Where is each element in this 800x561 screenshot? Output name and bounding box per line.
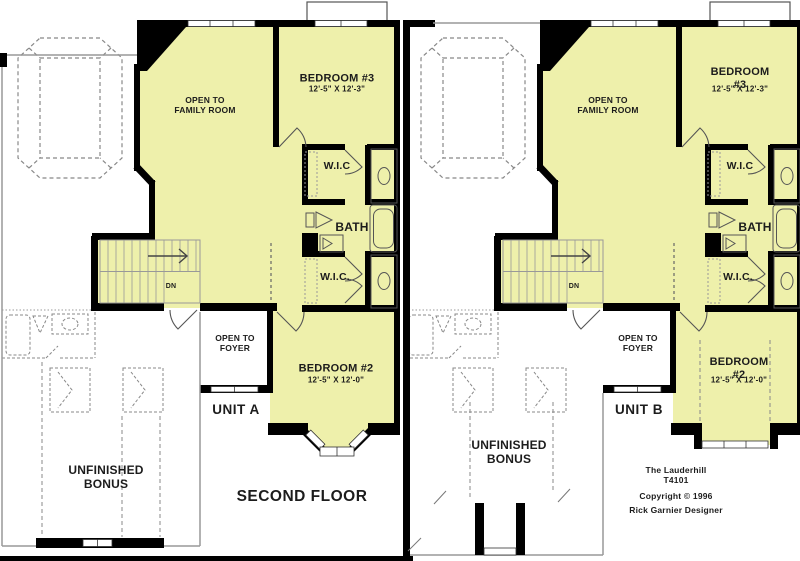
label-open-to-family-room: OPEN TO FAMILY ROOM: [577, 95, 638, 115]
unit-b-bonus-dormer: [475, 503, 525, 555]
label-unfinished-bonus: UNFINISHED BONUS: [471, 438, 546, 466]
label-wic-upper: W.I.C: [727, 160, 754, 172]
label-stairs-dn: DN: [569, 283, 580, 291]
title-plan-name: The Lauderhill: [646, 465, 707, 475]
label-bedroom2-dims: 12'-5" X 12'-0": [308, 375, 364, 384]
label-stairs-dn: DN: [166, 283, 177, 291]
label-open-to-foyer: OPEN TO FOYER: [215, 333, 255, 353]
label-bedroom3-dims: 12'-5" X 12'-3": [309, 84, 365, 93]
label-bath: BATH: [738, 220, 771, 234]
label-unfinished-bonus: UNFINISHED BONUS: [68, 463, 143, 491]
label-unit-b: UNIT B: [615, 402, 663, 418]
label-bedroom2: BEDROOM #2: [299, 363, 374, 376]
label-second-floor: SECOND FLOOR: [237, 488, 368, 506]
label-wic-lower: W.I.C.: [320, 271, 350, 283]
label-bedroom3-dims: 12'-5" X 12'-3": [712, 84, 768, 93]
label-open-to-foyer: OPEN TO FOYER: [618, 333, 658, 353]
party-wall: [403, 20, 410, 561]
label-bedroom2-dims: 12'-5" X 12'-0": [711, 375, 767, 384]
label-wic-upper: W.I.C: [324, 160, 351, 172]
label-bath: BATH: [335, 220, 368, 234]
title-designer: Rick Garnier Designer: [629, 505, 723, 515]
label-wic-lower: W.I.C.: [723, 271, 753, 283]
title-copyright: Copyright © 1996: [639, 491, 712, 501]
label-open-to-family-room: OPEN TO FAMILY ROOM: [174, 95, 235, 115]
floorplan-page: OPEN TO FAMILY ROOM BEDROOM #3 12'-5" X …: [0, 0, 800, 561]
label-unit-a: UNIT A: [212, 402, 260, 418]
title-plan-number: T4101: [663, 475, 688, 485]
